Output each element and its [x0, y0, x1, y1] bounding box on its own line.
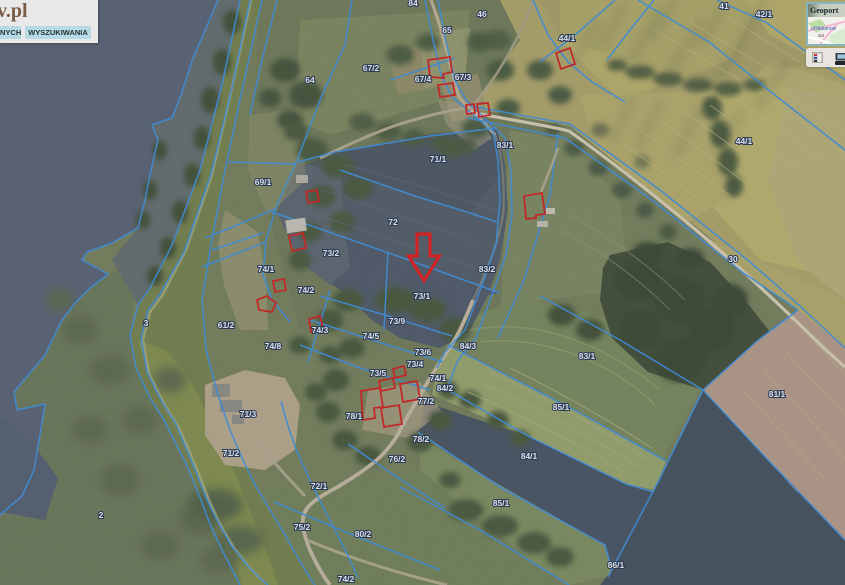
svg-text:uOdolanow: uOdolanow [811, 26, 837, 32]
svg-text:dol: dol [818, 33, 824, 38]
